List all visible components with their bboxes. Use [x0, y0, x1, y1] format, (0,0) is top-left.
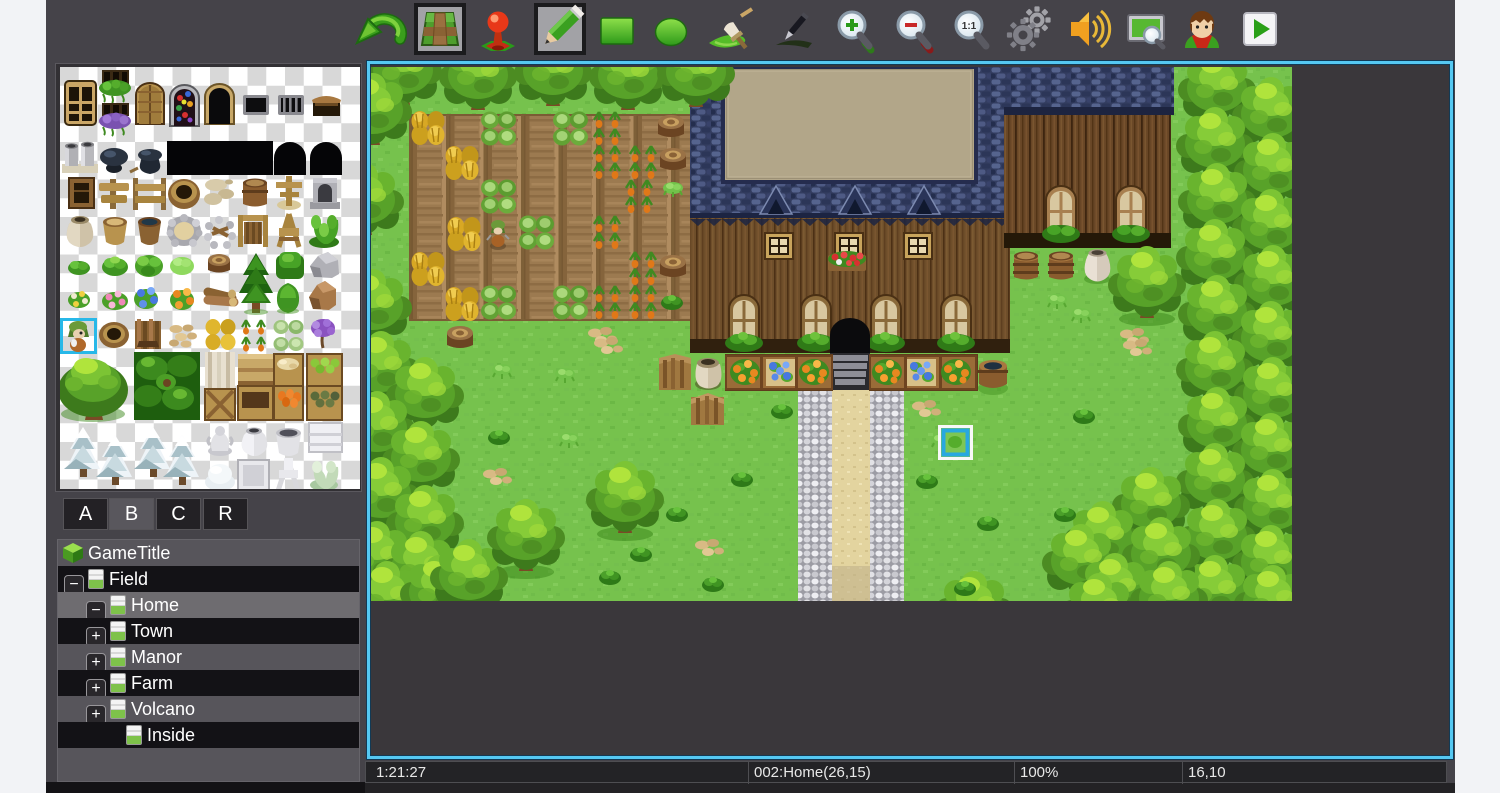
svg-text:1:1: 1:1 [962, 21, 977, 32]
